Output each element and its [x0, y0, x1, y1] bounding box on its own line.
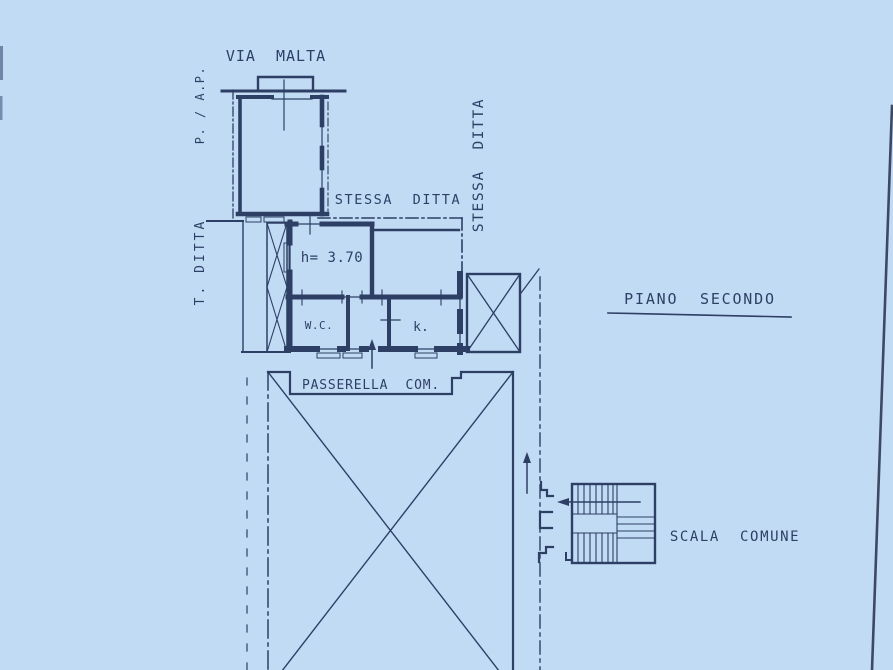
window-sill [264, 217, 284, 222]
stair-direction-arrow [557, 498, 640, 506]
window-sill [246, 217, 261, 222]
kitchen-label: k. [413, 320, 429, 335]
walkway-x-diagonal [268, 372, 513, 670]
direction-up-arrow [523, 452, 531, 493]
stair-treads-lower [578, 533, 613, 562]
floor-title-underline [608, 313, 791, 317]
margin-note-mid: T. DITTA [193, 219, 208, 306]
apartment-walls [284, 214, 467, 358]
adjacent-owner-label-vertical: STESSA DITTA [471, 98, 487, 232]
wc-label: W.C. [305, 319, 334, 332]
entry-arrow [368, 339, 376, 368]
hatched-shaft-strip [207, 221, 290, 352]
street-label: VIA MALTA [226, 47, 326, 65]
stair-treads-upper [578, 485, 613, 514]
window-sill [317, 353, 340, 358]
stair-symbol [557, 484, 655, 563]
room-height-note: h= 3.70 [301, 250, 364, 266]
stair-landing-lines [617, 517, 655, 538]
door-jamb-glyphs [539, 482, 553, 562]
margin-note-top: P. / A.P. [193, 66, 207, 145]
scan-left-specks [0, 46, 3, 120]
floor-title: PIANO SECONDO [624, 290, 776, 308]
page-edge-line [872, 106, 892, 670]
adjacent-owner-label-horizontal: STESSA DITTA [335, 192, 461, 208]
floor-plan-scan: VIA MALTA P. / A.P. T. DITTA STESSA DITT… [0, 0, 893, 670]
window-sill [343, 353, 362, 358]
walkway-x-diagonal [268, 372, 513, 670]
upper-room [233, 90, 328, 222]
right-balcony [467, 269, 539, 352]
window-sill [415, 353, 437, 358]
common-stairs-label: SCALA COMUNE [670, 529, 800, 545]
floor-plan-drawing: VIA MALTA P. / A.P. T. DITTA STESSA DITT… [0, 0, 893, 670]
walkway-label: PASSERELLA COM. [302, 378, 440, 393]
balcony-top [258, 77, 313, 91]
